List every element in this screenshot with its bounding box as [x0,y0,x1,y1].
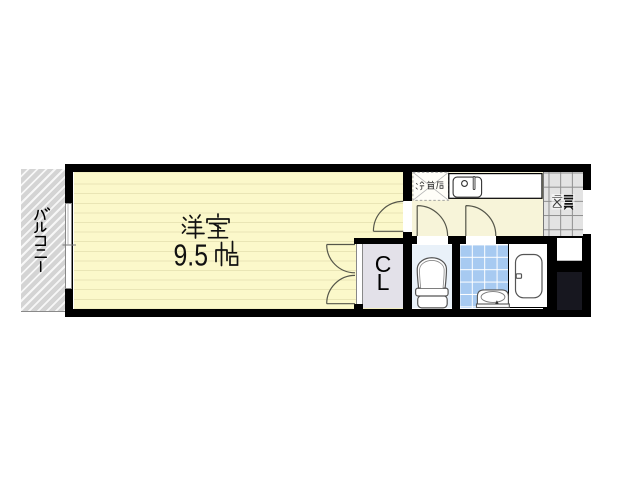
svg-text:9.5: 9.5 [174,238,209,273]
